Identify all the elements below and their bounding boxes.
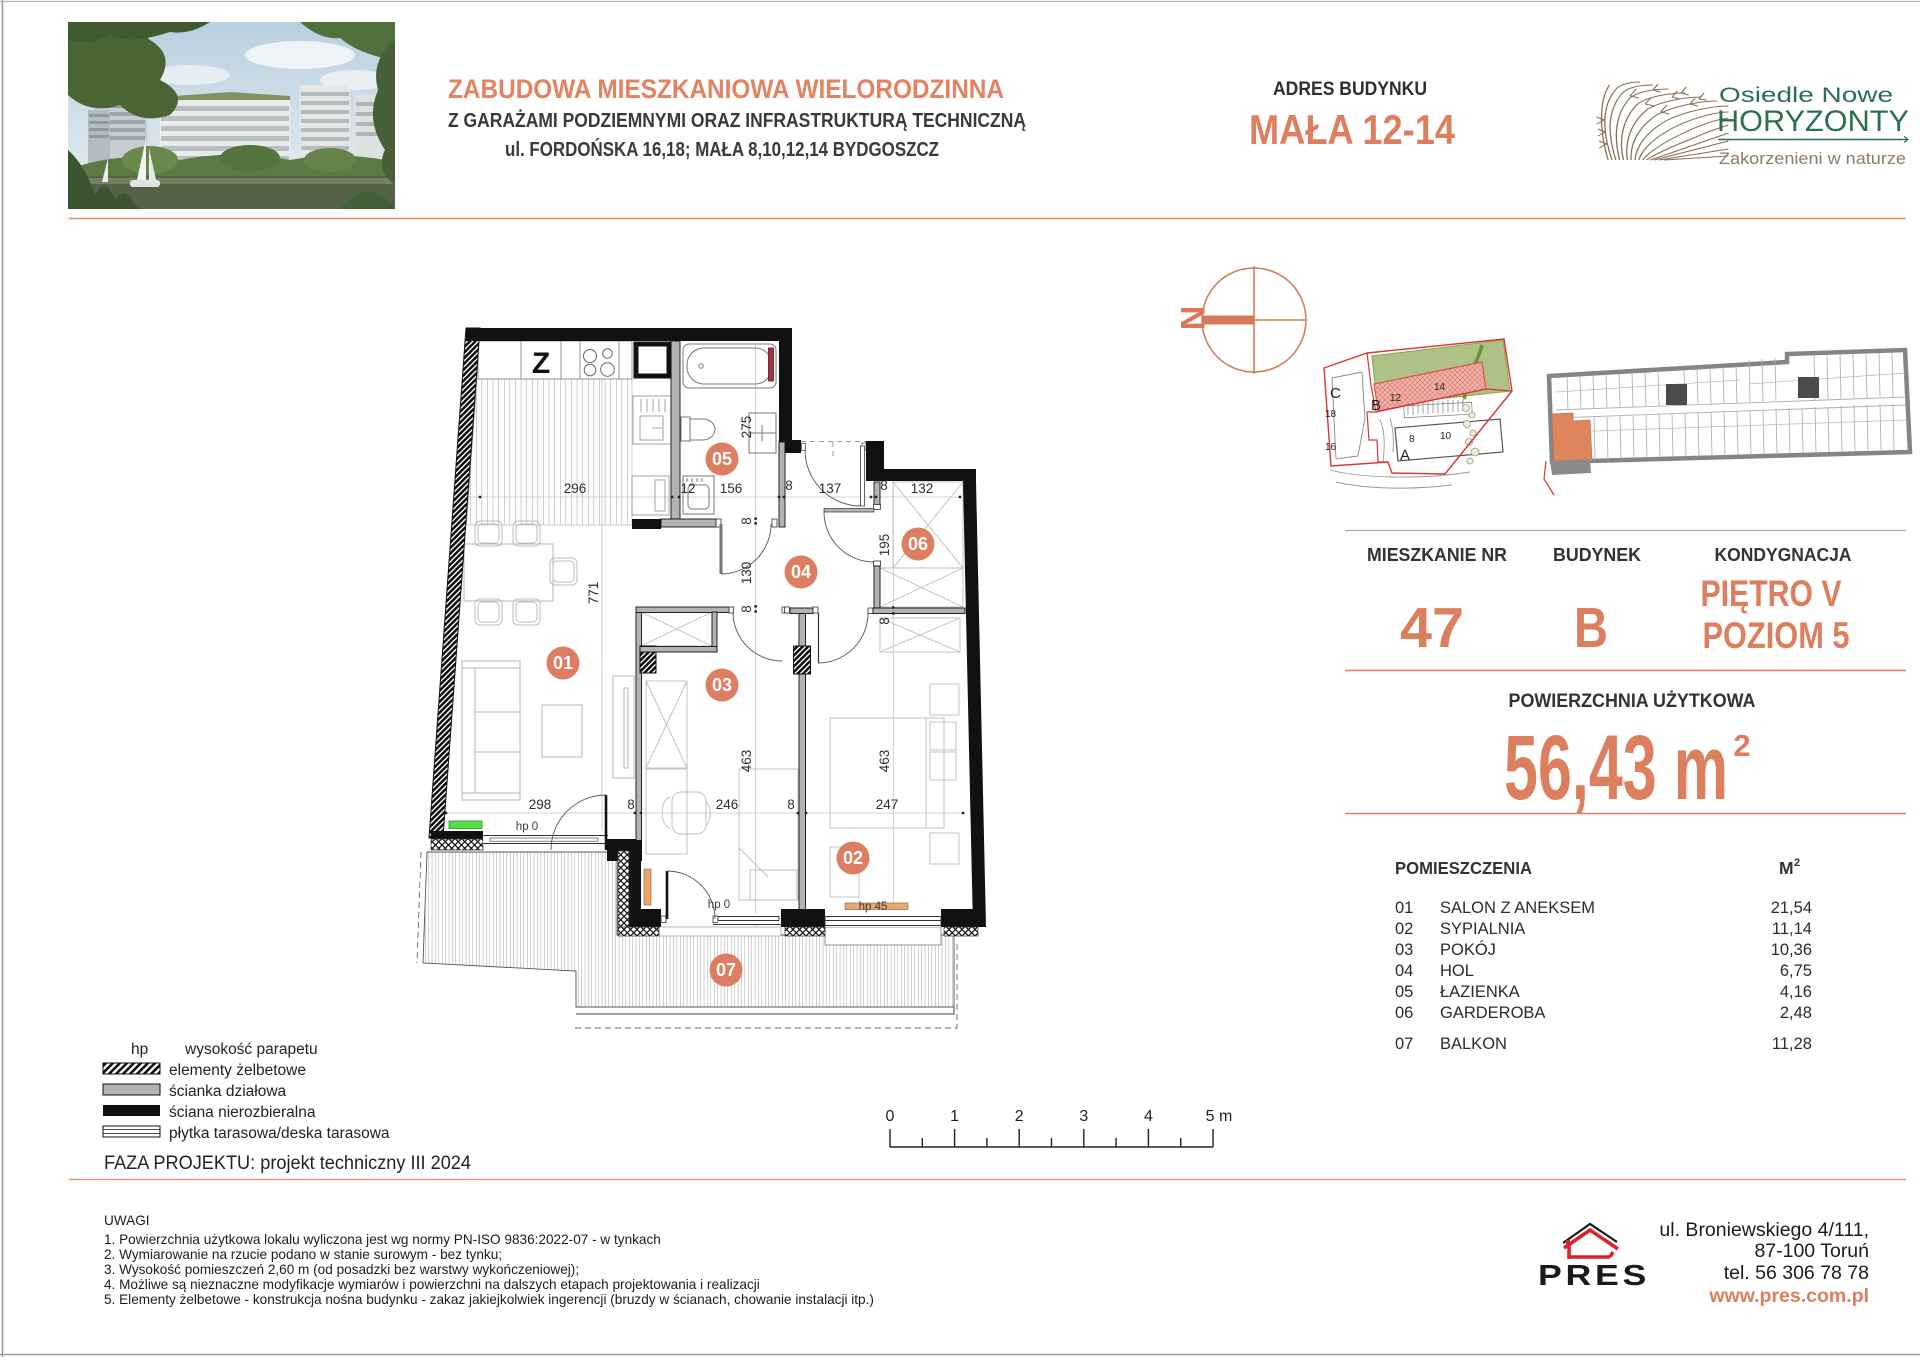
svg-text:6,75: 6,75 (1780, 962, 1812, 980)
svg-text:87-100 Toruń: 87-100 Toruń (1754, 1240, 1869, 1262)
svg-text:5 m: 5 m (1206, 1108, 1233, 1125)
svg-text:BUDYNEK: BUDYNEK (1553, 545, 1641, 565)
svg-text:07: 07 (1395, 1035, 1413, 1053)
svg-text:11,28: 11,28 (1772, 1035, 1812, 1053)
svg-text:8: 8 (787, 797, 795, 812)
svg-text:246: 246 (716, 797, 739, 812)
svg-text:10,36: 10,36 (1771, 941, 1812, 959)
svg-text:C: C (1330, 385, 1341, 402)
svg-text:771: 771 (586, 582, 601, 605)
svg-text:Zakorzenieni w naturze: Zakorzenieni w naturze (1719, 150, 1906, 168)
svg-text:MAŁA 12-14: MAŁA 12-14 (1249, 106, 1456, 153)
svg-text:5. Elementy żelbetowe - konstr: 5. Elementy żelbetowe - konstrukcja nośn… (104, 1292, 874, 1307)
svg-text:03: 03 (1395, 941, 1413, 959)
svg-text:FAZA PROJEKTU: projekt technic: FAZA PROJEKTU: projekt techniczny III 20… (104, 1153, 471, 1174)
svg-text:ŁAZIENKA: ŁAZIENKA (1440, 983, 1520, 1001)
svg-text:06: 06 (908, 534, 928, 554)
svg-text:05: 05 (1395, 983, 1413, 1001)
svg-text:POWIERZCHNIA UŻYTKOWA: POWIERZCHNIA UŻYTKOWA (1509, 691, 1756, 712)
svg-text:hp 0: hp 0 (516, 821, 538, 833)
svg-text:ADRES BUDYNKU: ADRES BUDYNKU (1273, 79, 1427, 100)
svg-text:4,16: 4,16 (1780, 983, 1812, 1001)
svg-text:3: 3 (1079, 1108, 1088, 1125)
svg-text:B: B (1371, 397, 1381, 414)
svg-text:1: 1 (950, 1108, 959, 1125)
svg-text:SALON Z ANEKSEM: SALON Z ANEKSEM (1440, 899, 1595, 917)
svg-text:04: 04 (1395, 962, 1413, 980)
svg-text:0: 0 (886, 1108, 895, 1125)
svg-text:hp: hp (131, 1041, 148, 1058)
svg-text:PIĘTRO V: PIĘTRO V (1701, 573, 1842, 614)
svg-text:01: 01 (1395, 899, 1413, 917)
svg-text:ścianka działowa: ścianka działowa (169, 1083, 287, 1100)
svg-text:HORYZONTY: HORYZONTY (1717, 105, 1909, 138)
svg-text:płytka tarasowa/deska tarasowa: płytka tarasowa/deska tarasowa (169, 1125, 390, 1142)
svg-text:GARDEROBA: GARDEROBA (1440, 1004, 1545, 1022)
svg-text:POMIESZCZENIA: POMIESZCZENIA (1395, 858, 1532, 878)
svg-text:SYPIALNIA: SYPIALNIA (1440, 920, 1525, 938)
svg-text:132: 132 (911, 481, 934, 496)
svg-text:05: 05 (712, 449, 732, 469)
svg-text:wysokość parapetu: wysokość parapetu (184, 1041, 318, 1058)
svg-text:18: 18 (1325, 409, 1337, 420)
svg-text:10: 10 (1440, 431, 1452, 442)
svg-text:463: 463 (739, 750, 754, 773)
svg-text:12: 12 (1390, 393, 1402, 404)
svg-text:2: 2 (1733, 728, 1750, 763)
svg-text:8: 8 (880, 478, 888, 493)
svg-text:07: 07 (716, 960, 736, 980)
svg-text:2,48: 2,48 (1780, 1004, 1812, 1022)
svg-text:8: 8 (739, 517, 754, 525)
svg-text:56,43 m: 56,43 m (1504, 717, 1728, 819)
svg-text:8: 8 (785, 478, 793, 493)
svg-text:01: 01 (553, 653, 573, 673)
svg-text:tel. 56 306 78 78: tel. 56 306 78 78 (1724, 1262, 1869, 1284)
svg-text:2. Wymiarowanie na rzucie poda: 2. Wymiarowanie na rzucie podano w stani… (104, 1247, 502, 1262)
svg-text:ul. Broniewskiego 4/111,: ul. Broniewskiego 4/111, (1659, 1219, 1869, 1241)
svg-text:A: A (1400, 447, 1410, 464)
svg-text:1. Powierzchnia użytkowa lokal: 1. Powierzchnia użytkowa lokalu wyliczon… (104, 1232, 661, 1247)
svg-text:hp 0: hp 0 (708, 899, 730, 911)
svg-text:ściana nierozbieralna: ściana nierozbieralna (169, 1104, 316, 1121)
svg-text:N: N (1173, 306, 1211, 331)
svg-text:04: 04 (791, 562, 811, 582)
svg-text:06: 06 (1395, 1004, 1413, 1022)
svg-text:463: 463 (877, 750, 892, 773)
svg-text:195: 195 (877, 534, 892, 557)
svg-text:137: 137 (819, 481, 842, 496)
svg-text:298: 298 (529, 797, 552, 812)
svg-text:POKÓJ: POKÓJ (1440, 940, 1496, 959)
svg-text:8: 8 (627, 797, 635, 812)
svg-text:UWAGI: UWAGI (104, 1213, 150, 1228)
svg-text:8: 8 (739, 605, 754, 613)
svg-text:B: B (1574, 596, 1608, 660)
svg-text:03: 03 (712, 675, 732, 695)
svg-text:POZIOM 5: POZIOM 5 (1703, 615, 1850, 656)
svg-text:4: 4 (1144, 1108, 1153, 1125)
svg-text:2: 2 (1015, 1108, 1024, 1125)
svg-text:KONDYGNACJA: KONDYGNACJA (1715, 545, 1852, 565)
svg-text:ul. FORDOŃSKA 16,18; MAŁA 8,10: ul. FORDOŃSKA 16,18; MAŁA 8,10,12,14 BYD… (505, 138, 939, 161)
svg-text:www.pres.com.pl: www.pres.com.pl (1708, 1285, 1869, 1307)
svg-text:ZABUDOWA MIESZKANIOWA WIELOROD: ZABUDOWA MIESZKANIOWA WIELORODZINNA (448, 74, 1004, 104)
svg-text:Z GARAŻAMI PODZIEMNYMI ORAZ IN: Z GARAŻAMI PODZIEMNYMI ORAZ INFRASTRUKTU… (448, 109, 1026, 132)
svg-text:Z: Z (532, 347, 550, 380)
svg-text:16: 16 (1325, 442, 1337, 453)
svg-text:47: 47 (1400, 596, 1464, 660)
svg-text:14: 14 (1434, 382, 1446, 393)
svg-text:HOL: HOL (1440, 962, 1474, 980)
svg-text:02: 02 (843, 848, 863, 868)
svg-text:247: 247 (876, 797, 899, 812)
svg-text:02: 02 (1395, 920, 1413, 938)
svg-text:156: 156 (720, 481, 743, 496)
svg-text:12: 12 (680, 481, 695, 496)
svg-text:8: 8 (1409, 434, 1415, 445)
svg-text:2: 2 (1794, 857, 1800, 869)
svg-text:11,14: 11,14 (1772, 920, 1812, 938)
svg-text:296: 296 (564, 481, 587, 496)
svg-text:4. Możliwe są nieznaczne modyf: 4. Możliwe są nieznaczne modyfikacje wym… (104, 1277, 760, 1292)
svg-text:BALKON: BALKON (1440, 1035, 1507, 1053)
svg-text:M: M (1779, 858, 1794, 878)
svg-text:130: 130 (739, 562, 754, 585)
svg-text:MIESZKANIE NR: MIESZKANIE NR (1367, 545, 1507, 565)
svg-text:Osiedle Nowe: Osiedle Nowe (1719, 84, 1893, 107)
svg-text:3. Wysokość pomieszczeń 2,60 m: 3. Wysokość pomieszczeń 2,60 m (od posad… (104, 1262, 579, 1277)
svg-text:8: 8 (877, 617, 892, 625)
svg-text:275: 275 (739, 416, 754, 439)
svg-text:elementy żelbetowe: elementy żelbetowe (169, 1062, 306, 1079)
svg-text:PRES: PRES (1538, 1260, 1650, 1292)
svg-text:21,54: 21,54 (1771, 899, 1812, 917)
svg-text:hp 45: hp 45 (859, 901, 888, 913)
